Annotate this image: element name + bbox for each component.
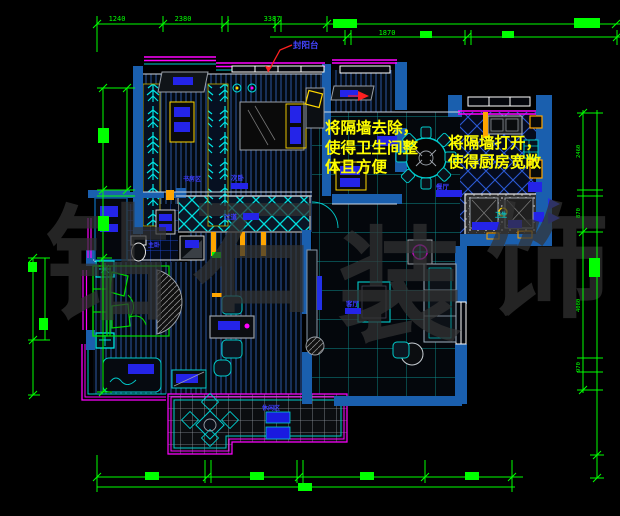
dim-text: 870 [576,208,582,218]
cad-canvas: 钻 石 装 饰 1240 2380 3387 1870 2460 870 [0,0,620,516]
plant [306,337,324,355]
dim-block [360,472,374,480]
label-bathroom: 卫生 [495,211,507,219]
dim-text: 2380 [175,15,192,23]
dim-block [145,472,159,480]
label-corridor: 过道 [224,212,238,221]
dim-block [98,216,109,231]
dim-text: 4080 [576,299,582,312]
dim-block [420,31,432,38]
balcony-leader-text: 封阳台 [293,40,319,51]
dim-block [502,31,514,38]
lounge-chair-1 [266,412,290,423]
dim-text: 3387 [264,15,281,23]
dim-text: 970 [576,362,582,372]
lounge-chair-2 [266,427,290,439]
dim-text: 2460 [576,145,582,158]
chair-2 [222,340,242,358]
label-block [243,213,259,220]
note-bathroom-line3: 体且方便 [325,157,388,176]
label-study: 书房区 [183,175,201,183]
dim-block [39,318,48,330]
dim-block [333,19,357,28]
label-master: 主卧 [148,241,160,249]
chaise [103,358,161,392]
tv [317,276,322,310]
note-kitchen-line2: 使得厨房宽敞 [447,152,542,171]
watermark-char-3: 装 [338,220,462,357]
dim-block [98,128,109,143]
dimension-bottom [93,455,523,492]
watermark-char-2: 石 [193,190,317,327]
note-kitchen-line1: 将隔墙打开， [448,133,541,152]
label-block [345,308,361,314]
dim-block [298,483,312,491]
dimension-top [93,16,620,52]
label-leisure: 休闲区 [261,404,280,412]
label-living: 客厅 [345,299,360,308]
bottom-balcony [168,394,347,454]
dim-text: 1240 [109,15,126,23]
dim-block [250,472,264,480]
dim-block [465,472,479,480]
dim-block [574,18,600,28]
dim-text: 1870 [379,29,396,37]
note-bathroom-line2: 使得卫生间整 [324,138,419,157]
cabinet-1 [530,116,542,128]
dim-block [28,262,37,272]
label-dining: 餐厅 [435,182,450,191]
floor-plan-drawing: 钻 石 装 饰 1240 2380 3387 1870 2460 870 [0,0,620,516]
label-block [231,183,248,189]
label-bedroom2: 次卧 [231,173,245,182]
note-bathroom-line1: 将隔墙去除， [325,118,418,137]
dim-block [589,258,600,277]
